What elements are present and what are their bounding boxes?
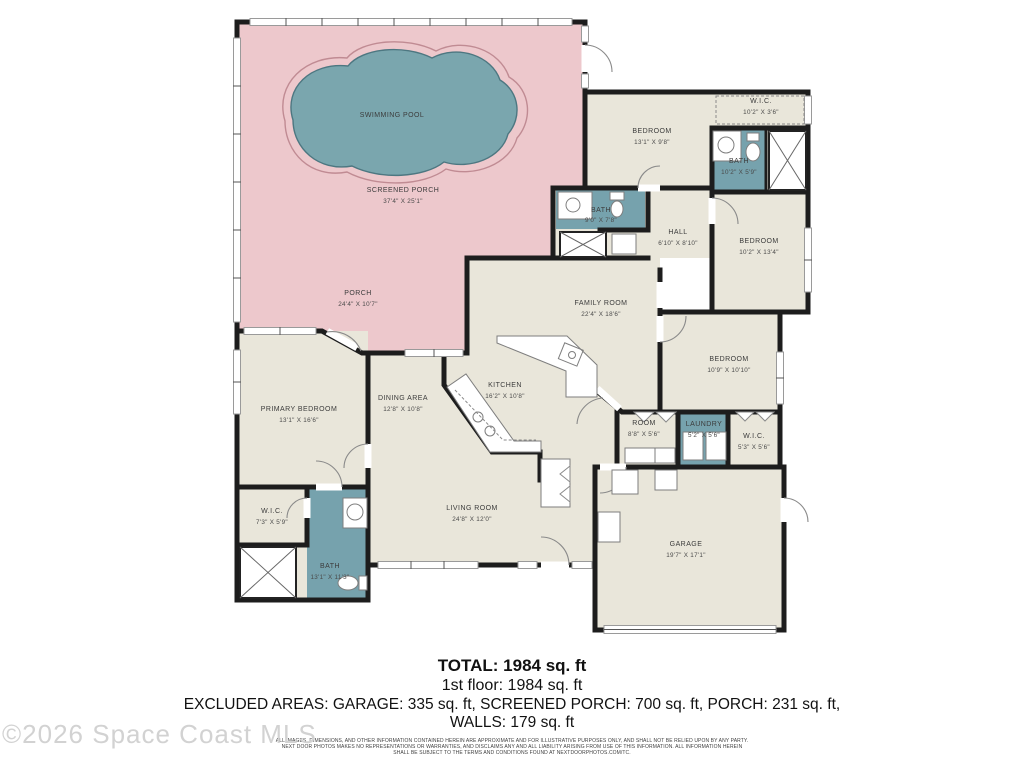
room-label-room: ROOM <box>632 420 656 427</box>
room-dims-wic-2: 5'3" X 5'6" <box>738 444 770 451</box>
room-label-screened-porch: SCREENED PORCH <box>367 187 439 194</box>
shower-bottom-left <box>240 547 296 598</box>
mls-watermark: ©2026 Space Coast MLS <box>2 719 317 750</box>
room-label-laundry: LAUNDRY <box>686 421 722 428</box>
shower-top-right <box>769 131 806 190</box>
room-dims-porch: 24'4" X 10'7" <box>338 301 378 308</box>
room-label-bedroom-2: BEDROOM <box>739 238 778 245</box>
room-dims-bedroom-2: 10'2" X 13'4" <box>739 249 779 256</box>
room-label-garage: GARAGE <box>670 541 703 548</box>
room-dims-hall: 6'10" X 8'10" <box>658 240 698 247</box>
pool-label: SWIMMING POOL <box>360 112 425 119</box>
room-label-bath-3: BATH <box>320 563 340 570</box>
room-dims-bedroom-3: 10'9" X 10'10" <box>707 367 750 374</box>
room-dims-dining-area: 12'8" X 10'8" <box>383 406 423 413</box>
room-label-bedroom-1: BEDROOM <box>632 128 671 135</box>
room-dims-living-room: 24'8" X 12'0" <box>452 516 492 523</box>
room-label-wic-1: W.I.C. <box>750 98 772 105</box>
disclaimer-line-3: SHALL BE SUBJECT TO THE TERMS AND CONDIT… <box>0 750 1024 756</box>
room-dims-bath-1: 10'2" X 5'9" <box>721 169 757 176</box>
floor-plan-page: SWIMMING POOL <box>0 0 1024 768</box>
room-label-hall: HALL <box>668 229 687 236</box>
total-area-line: TOTAL: 1984 sq. ft <box>0 656 1024 676</box>
room-dims-bedroom-1: 13'1" X 9'8" <box>634 139 670 146</box>
room-label-primary-bedroom: PRIMARY BEDROOM <box>261 406 338 413</box>
room-label-porch: PORCH <box>344 290 372 297</box>
room-dims-laundry: 5'2" X 5'6" <box>688 432 720 439</box>
room-dims-wic-3: 7'3" X 5'9" <box>256 519 288 526</box>
room-label-living-room: LIVING ROOM <box>446 505 498 512</box>
room-dims-family-room: 22'4" X 18'6" <box>581 311 621 318</box>
shower-middle <box>560 232 606 257</box>
room-dims-bath-2: 9'0" X 7'8" <box>585 217 617 224</box>
room-dims-garage: 19'7" X 17'1" <box>666 552 706 559</box>
room-label-wic-3: W.I.C. <box>261 508 283 515</box>
room-label-bath-2: BATH <box>591 207 611 214</box>
floor-plan: SWIMMING POOL <box>0 0 1024 648</box>
room-label-family-room: FAMILY ROOM <box>575 300 628 307</box>
room-label-kitchen: KITCHEN <box>488 382 522 389</box>
excluded-areas-line: EXCLUDED AREAS: GARAGE: 335 sq. ft, SCRE… <box>0 696 1024 714</box>
room-dims-bath-3: 13'1" X 11'3" <box>310 574 349 581</box>
room-label-wic-2: W.I.C. <box>743 433 765 440</box>
room-label-dining-area: DINING AREA <box>378 395 428 402</box>
room-label-bath-1: BATH <box>729 158 749 165</box>
room-label-bedroom-3: BEDROOM <box>709 356 748 363</box>
room-dims-screened-porch: 37'4" X 25'1" <box>383 198 423 205</box>
room-dims-room: 8'8" X 5'6" <box>628 431 660 438</box>
first-floor-line: 1st floor: 1984 sq. ft <box>0 677 1024 695</box>
room-dims-kitchen: 16'2" X 10'8" <box>485 393 525 400</box>
room-dims-wic-1: 10'2" X 3'6" <box>743 109 779 116</box>
room-dims-primary-bedroom: 13'1" X 16'6" <box>279 417 319 424</box>
